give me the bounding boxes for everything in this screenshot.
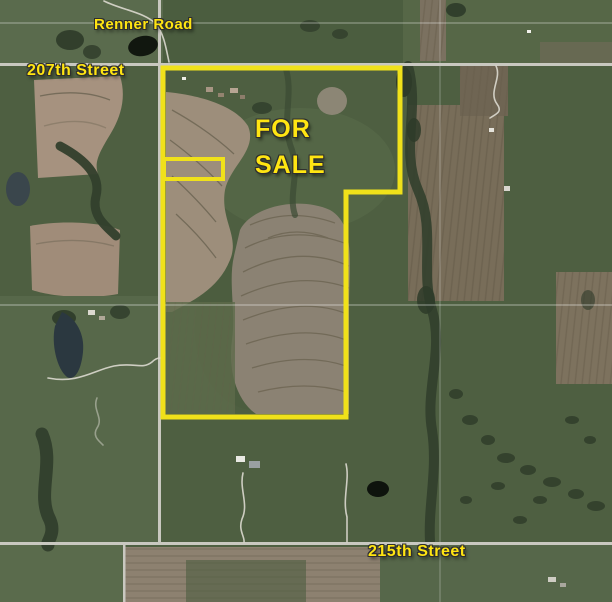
215th-street-label: 215th Street [368,543,466,561]
satellite-imagery [0,0,612,602]
pond [6,172,30,206]
pond [367,481,389,497]
field-patches [0,0,612,602]
for-sale-line2: SALE [255,147,326,183]
aerial-map: Renner Road 207th Street FOR SALE 215th … [0,0,612,602]
for-sale-line1: FOR [255,111,326,147]
207th-street-label: 207th Street [27,62,125,80]
renner-road-label: Renner Road [94,16,193,33]
road-renner-south-line [123,545,126,602]
road-215th-line [0,542,612,545]
for-sale-label: FOR SALE [255,111,326,183]
